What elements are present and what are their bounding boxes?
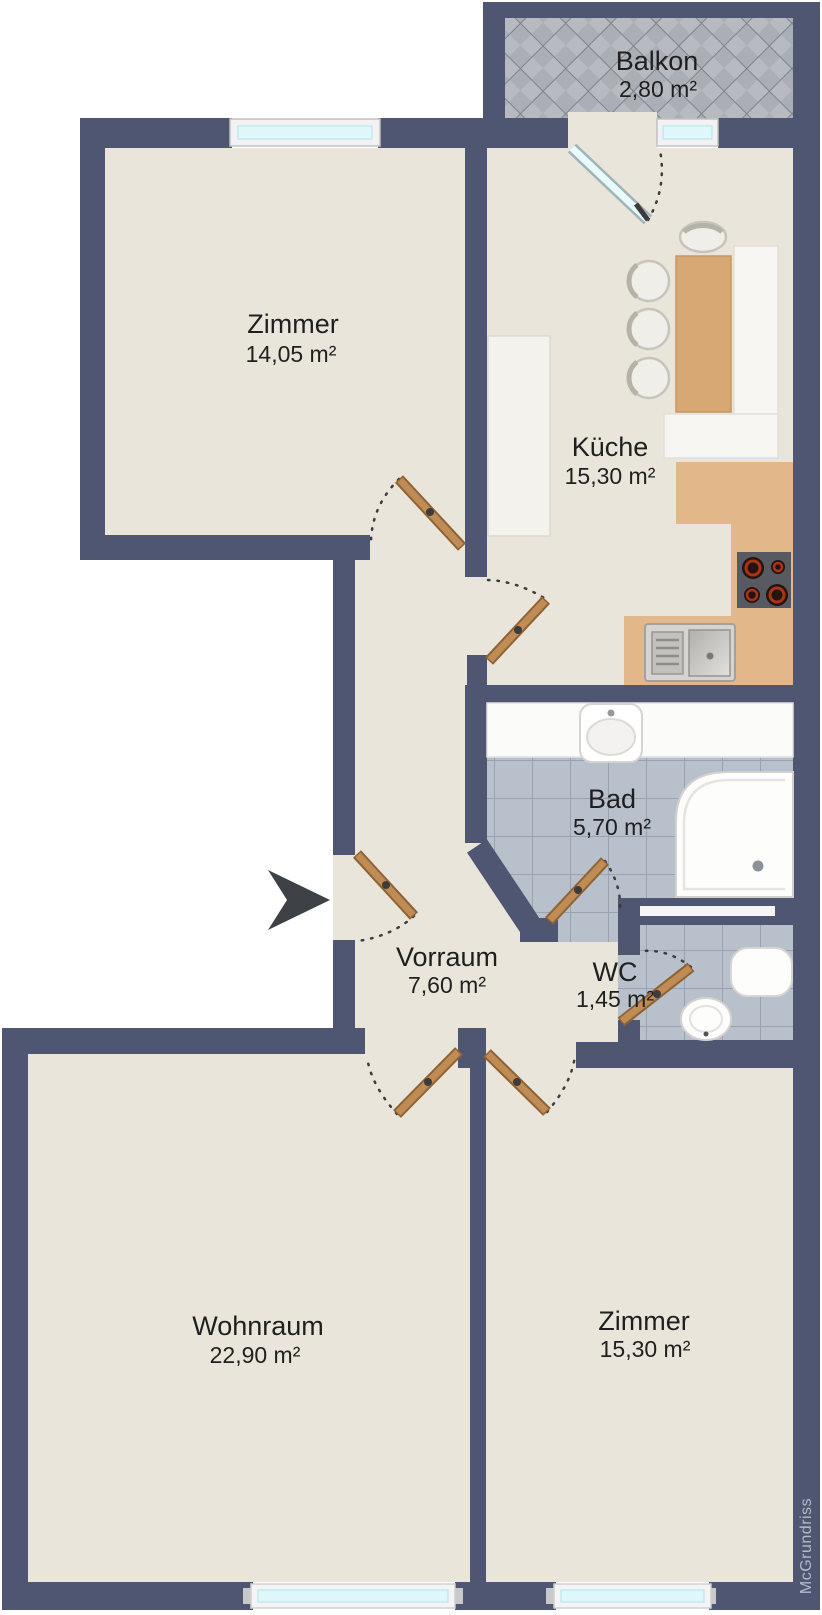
wall-wc-left-bottom	[618, 1020, 640, 1042]
watermark: McGrundriss	[798, 1498, 815, 1594]
stove	[737, 552, 791, 608]
bathtub	[676, 772, 793, 897]
label-vorraum: Vorraum 7,60 m²	[396, 942, 498, 998]
wall-kueche-bad	[465, 685, 793, 703]
wohnraum-door-threshold	[365, 1028, 460, 1058]
room-area: 14,05 m²	[246, 341, 337, 367]
window-wohnraum	[243, 1584, 463, 1608]
wall-kueche-door-jamb	[467, 655, 487, 688]
wall-wc-left-top	[618, 898, 640, 955]
room-area: 15,30 m²	[600, 1336, 691, 1362]
entrance-threshold	[333, 853, 355, 942]
wall-zimmer-top-bottom	[80, 535, 370, 560]
wall-zimmer-bottom-top	[576, 1042, 793, 1068]
floorplan-canvas: Balkon 2,80 m² Zimmer 14,05 m² Küche 15,…	[0, 0, 822, 1615]
kitchen-bench-horizontal	[664, 414, 778, 458]
wall-bottom-c	[709, 1582, 793, 1610]
wall-divider-bottom	[470, 1042, 486, 1608]
window-zimmer-bottom	[546, 1584, 716, 1608]
entrance-arrow-icon	[268, 870, 330, 930]
balcony-door-threshold	[568, 112, 657, 152]
wall-bottom-b	[455, 1582, 556, 1610]
wall-corridor-lower	[333, 940, 355, 1030]
label-balkon: Balkon 2,80 m²	[616, 46, 699, 102]
floorplan-svg: Balkon 2,80 m² Zimmer 14,05 m² Küche 15,…	[0, 0, 822, 1615]
room-area: 1,45 m²	[576, 986, 654, 1012]
room-area: 15,30 m²	[565, 463, 656, 489]
room-name: Küche	[572, 432, 649, 462]
room-area: 7,60 m²	[408, 972, 486, 998]
kitchen-sink	[645, 624, 735, 681]
wall-wohnraum-top	[2, 1028, 365, 1054]
wall-balcony-left	[483, 2, 505, 122]
room-name: Zimmer	[247, 309, 338, 339]
room-name: WC	[593, 957, 638, 987]
room-name: Zimmer	[598, 1306, 689, 1336]
label-zimmer-bottom: Zimmer 15,30 m²	[598, 1306, 690, 1362]
label-zimmer-top: Zimmer 14,05 m²	[246, 309, 339, 367]
room-name: Wohnraum	[192, 1311, 324, 1341]
wall-balcony-top	[483, 2, 793, 18]
dining-table	[676, 256, 731, 412]
wall-top-b	[378, 118, 568, 148]
room-area: 2,80 m²	[619, 76, 697, 102]
wall-left-lower	[2, 1028, 28, 1610]
room-area: 22,90 m²	[210, 1342, 301, 1368]
kitchen-cabinet	[488, 336, 550, 536]
wall-divider-kueche	[465, 148, 487, 577]
label-kueche: Küche 15,30 m²	[565, 432, 656, 489]
room-area: 5,70 m²	[573, 814, 651, 840]
room-name: Bad	[588, 784, 636, 814]
window-kueche	[657, 119, 718, 146]
room-name: Balkon	[616, 46, 699, 76]
washbasin	[580, 704, 642, 762]
window-zimmer-top	[230, 119, 380, 146]
wall-corridor-upper	[333, 558, 355, 855]
wall-right	[793, 2, 820, 1610]
wall-top-c	[718, 118, 793, 148]
wall-bottom-a	[2, 1582, 253, 1610]
wall-bad-left	[465, 703, 487, 843]
wall-left-upper	[80, 118, 105, 560]
wall-niche	[640, 906, 775, 916]
room-name: Vorraum	[396, 942, 498, 972]
